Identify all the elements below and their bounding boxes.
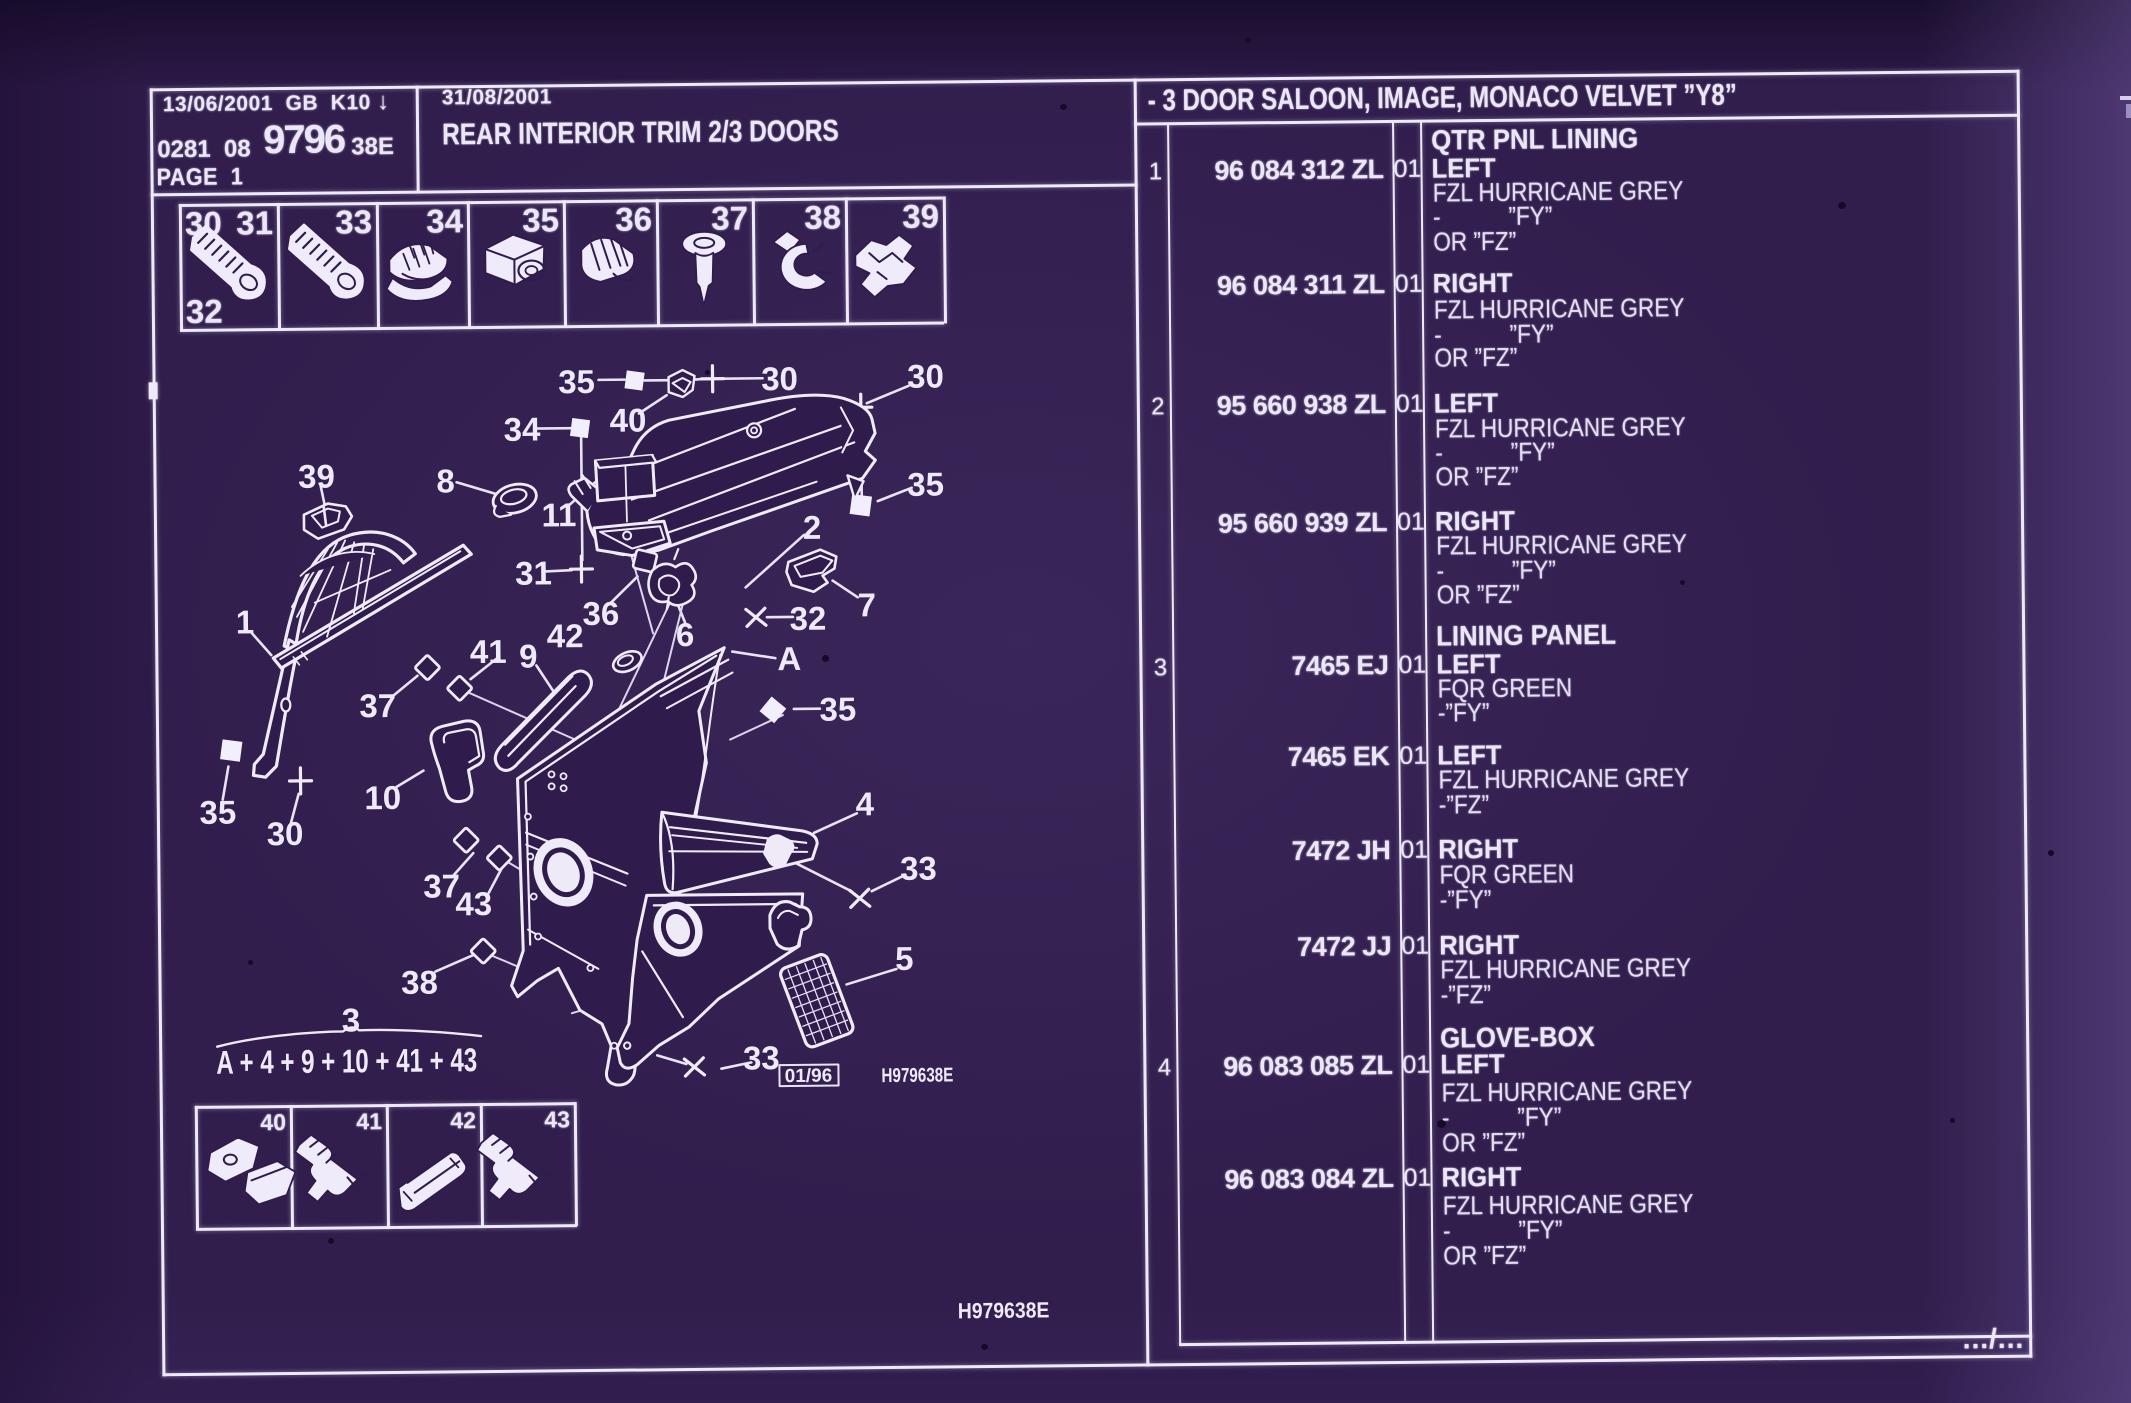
svg-text:35: 35 <box>819 690 856 727</box>
svg-text:5: 5 <box>895 940 914 977</box>
svg-text:33: 33 <box>900 850 937 887</box>
svg-text:01/96: 01/96 <box>785 1066 833 1087</box>
svg-text:8: 8 <box>436 462 455 499</box>
svg-text:30: 30 <box>907 357 944 394</box>
svg-text:38: 38 <box>401 964 438 1001</box>
svg-text:1: 1 <box>236 603 255 640</box>
svg-text:35: 35 <box>199 794 236 831</box>
svg-text:30: 30 <box>761 360 798 397</box>
svg-text:43: 43 <box>455 885 492 922</box>
svg-text:31: 31 <box>515 554 552 591</box>
svg-text:4: 4 <box>855 785 874 822</box>
svg-text:39: 39 <box>298 458 335 495</box>
svg-text:35: 35 <box>907 465 944 502</box>
svg-text:11: 11 <box>541 496 576 533</box>
svg-text:36: 36 <box>582 595 619 632</box>
svg-text:7: 7 <box>857 586 876 623</box>
svg-text:2: 2 <box>803 509 822 546</box>
svg-text:9: 9 <box>519 638 538 675</box>
svg-text:H979638E: H979638E <box>881 1063 953 1086</box>
svg-text:34: 34 <box>504 410 542 447</box>
svg-text:A: A <box>777 640 801 677</box>
svg-text:32: 32 <box>789 600 826 637</box>
svg-text:A + 4 + 9 + 10 + 41 + 43: A + 4 + 9 + 10 + 41 + 43 <box>216 1043 477 1082</box>
svg-text:37: 37 <box>359 687 396 724</box>
svg-text:6: 6 <box>676 616 695 653</box>
svg-text:42: 42 <box>547 617 584 654</box>
svg-text:41: 41 <box>470 633 507 670</box>
svg-text:33: 33 <box>743 1039 780 1076</box>
svg-text:35: 35 <box>558 363 595 400</box>
svg-text:H979638E: H979638E <box>958 1298 1050 1323</box>
svg-text:3: 3 <box>342 1001 361 1038</box>
svg-text:40: 40 <box>609 401 646 438</box>
svg-text:30: 30 <box>267 815 304 852</box>
svg-text:10: 10 <box>364 779 401 816</box>
